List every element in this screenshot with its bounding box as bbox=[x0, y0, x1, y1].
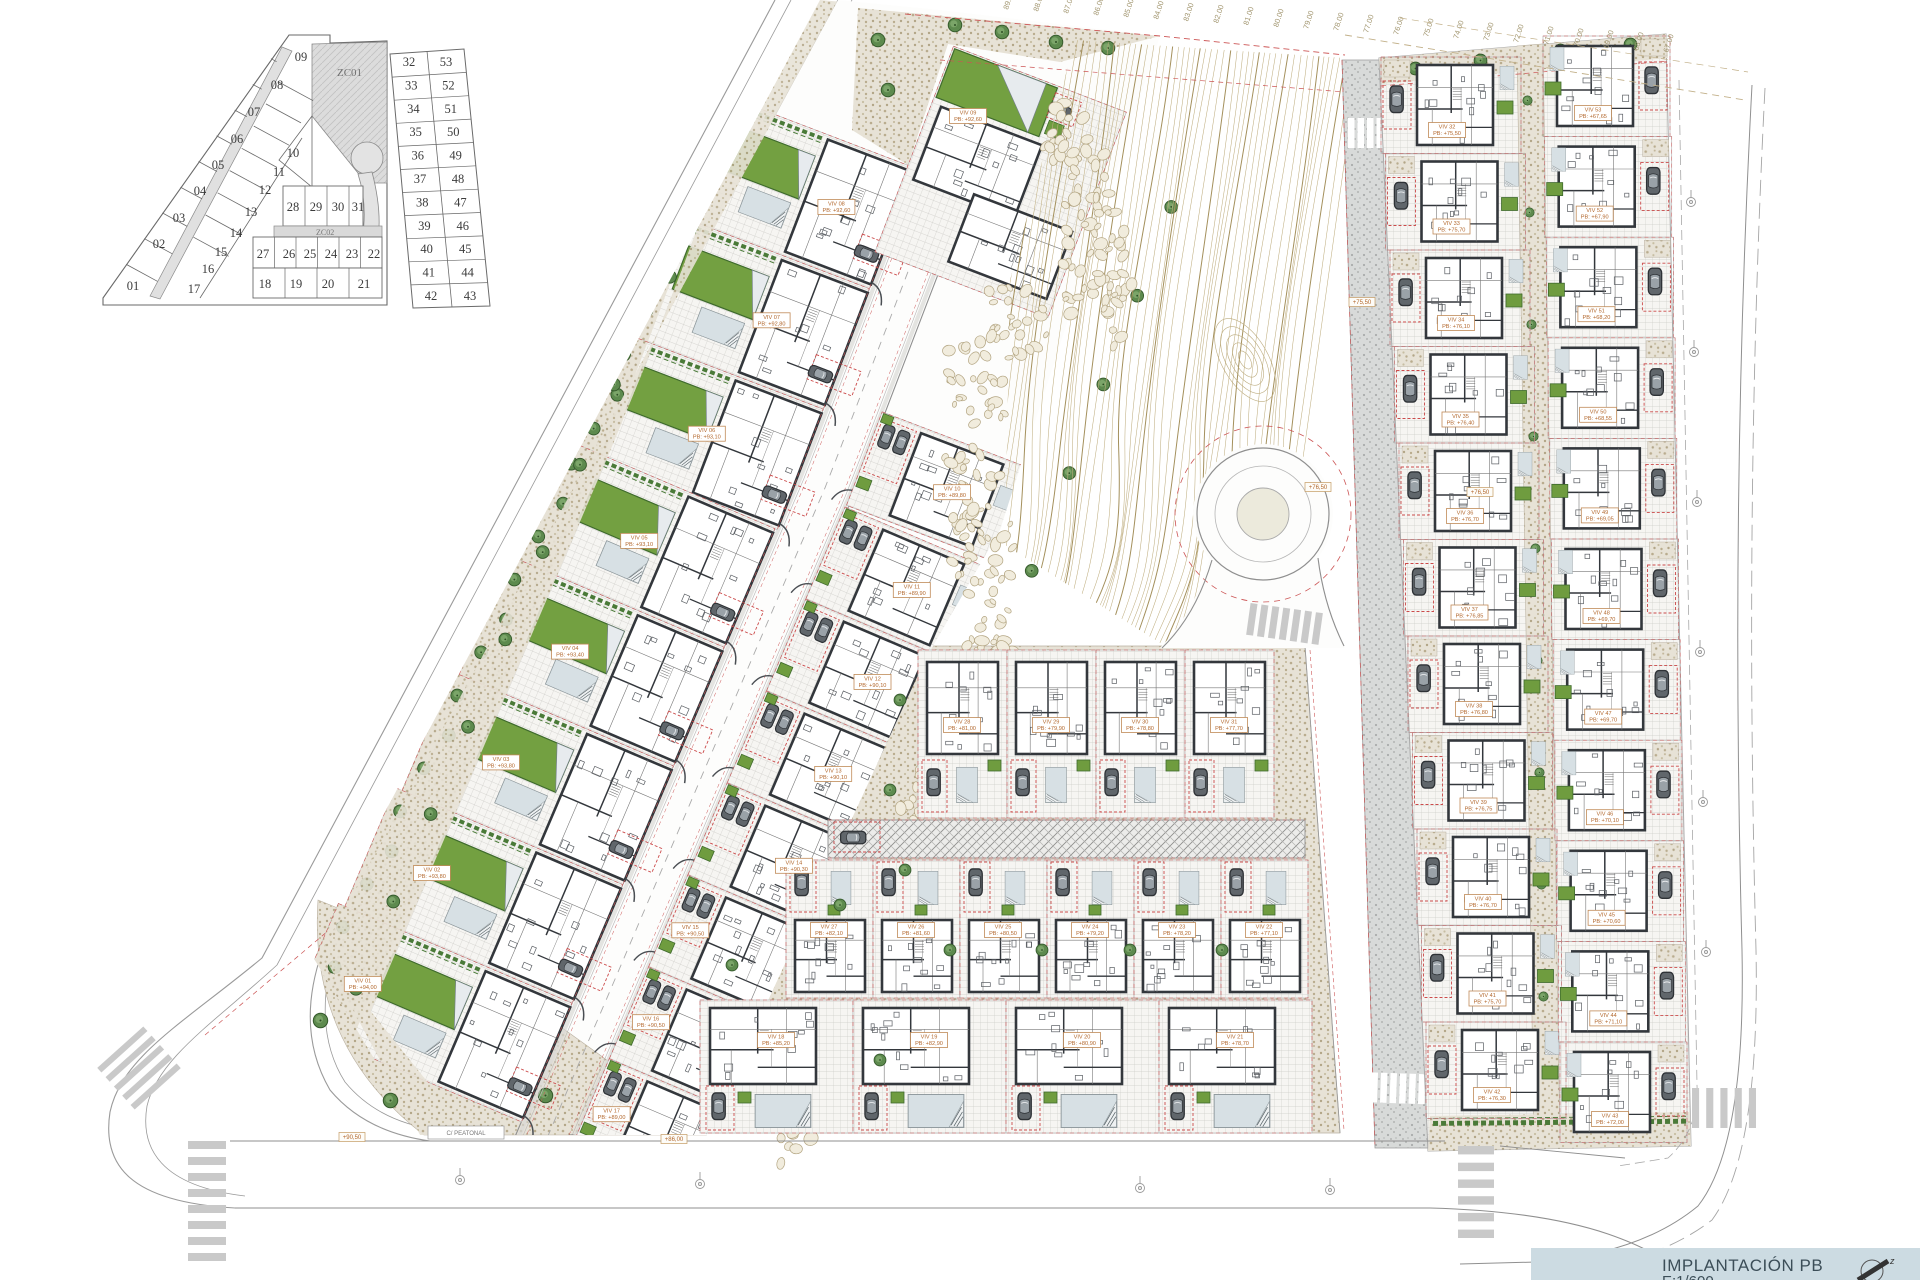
svg-text:14: 14 bbox=[230, 226, 243, 240]
svg-text:VIV 40: VIV 40 bbox=[1475, 897, 1492, 903]
svg-text:VIV 48: VIV 48 bbox=[1593, 611, 1610, 617]
svg-text:13: 13 bbox=[245, 205, 258, 219]
svg-text:15: 15 bbox=[215, 245, 228, 259]
svg-text:45: 45 bbox=[459, 242, 472, 256]
svg-text:01: 01 bbox=[127, 279, 140, 293]
svg-text:40: 40 bbox=[420, 242, 433, 256]
svg-text:VIV 03: VIV 03 bbox=[493, 757, 510, 763]
svg-text:03: 03 bbox=[173, 211, 186, 225]
svg-text:PB: +68,20: PB: +68,20 bbox=[1582, 315, 1610, 321]
svg-text:PB: +92,60: PB: +92,60 bbox=[822, 208, 850, 214]
svg-text:PB: +89,00: PB: +89,00 bbox=[598, 1115, 626, 1121]
svg-text:PB: +76,10: PB: +76,10 bbox=[1442, 324, 1470, 330]
svg-text:41: 41 bbox=[423, 266, 436, 280]
svg-text:11: 11 bbox=[273, 165, 285, 179]
svg-text:ZC01: ZC01 bbox=[337, 67, 362, 79]
svg-text:PB: +78,20: PB: +78,20 bbox=[1163, 931, 1191, 937]
svg-text:PB: +90,50: PB: +90,50 bbox=[637, 1023, 665, 1029]
svg-text:33: 33 bbox=[405, 78, 418, 92]
svg-text:VIV 51: VIV 51 bbox=[1588, 309, 1605, 315]
svg-text:PB: +89,80: PB: +89,80 bbox=[938, 493, 966, 499]
svg-text:29: 29 bbox=[310, 200, 323, 214]
svg-text:PB: +76,30: PB: +76,30 bbox=[1478, 1096, 1506, 1102]
svg-text:VIV 37: VIV 37 bbox=[1461, 607, 1478, 613]
svg-text:VIV 52: VIV 52 bbox=[1586, 208, 1603, 214]
svg-text:21: 21 bbox=[358, 277, 371, 291]
svg-text:VIV 24: VIV 24 bbox=[1082, 925, 1099, 931]
svg-text:+76,50: +76,50 bbox=[1471, 490, 1490, 496]
svg-text:PB: +69,70: PB: +69,70 bbox=[1588, 617, 1616, 623]
svg-text:PB: +69,05: PB: +69,05 bbox=[1586, 516, 1614, 522]
svg-text:VIV 34: VIV 34 bbox=[1448, 318, 1465, 324]
svg-text:VIV 28: VIV 28 bbox=[954, 720, 971, 726]
svg-text:PB: +79,90: PB: +79,90 bbox=[1037, 726, 1065, 732]
svg-text:07: 07 bbox=[248, 105, 261, 119]
svg-text:PB: +69,70: PB: +69,70 bbox=[1589, 718, 1617, 724]
svg-text:+76,50: +76,50 bbox=[1309, 485, 1328, 491]
svg-text:PB: +71,10: PB: +71,10 bbox=[1594, 1019, 1622, 1025]
svg-text:02: 02 bbox=[153, 237, 166, 251]
svg-text:+86,00: +86,00 bbox=[665, 1137, 684, 1143]
svg-text:22: 22 bbox=[368, 247, 381, 261]
svg-text:52: 52 bbox=[442, 78, 455, 92]
svg-text:PB: +77,70: PB: +77,70 bbox=[1215, 726, 1243, 732]
svg-text:C/ PEATONAL: C/ PEATONAL bbox=[446, 1131, 486, 1137]
svg-text:VIV 49: VIV 49 bbox=[1591, 510, 1608, 516]
svg-text:VIV 14: VIV 14 bbox=[786, 860, 803, 866]
svg-text:PB: +77,10: PB: +77,10 bbox=[1250, 931, 1278, 937]
svg-text:PB: +93,10: PB: +93,10 bbox=[625, 542, 653, 548]
svg-text:42: 42 bbox=[425, 289, 438, 303]
svg-text:PB: +93,10: PB: +93,10 bbox=[693, 435, 721, 441]
svg-text:VIV 02: VIV 02 bbox=[424, 868, 441, 874]
svg-text:PB: +93,80: PB: +93,80 bbox=[487, 763, 515, 769]
svg-text:VIV 13: VIV 13 bbox=[825, 768, 842, 774]
svg-text:VIV 43: VIV 43 bbox=[1602, 1114, 1619, 1120]
svg-text:ZC02: ZC02 bbox=[316, 228, 334, 237]
svg-text:50: 50 bbox=[447, 125, 460, 139]
svg-text:VIV 33: VIV 33 bbox=[1443, 221, 1460, 227]
svg-text:48: 48 bbox=[452, 172, 465, 186]
svg-text:12: 12 bbox=[259, 183, 272, 197]
svg-text:28: 28 bbox=[287, 200, 300, 214]
svg-text:53: 53 bbox=[440, 55, 453, 69]
svg-text:+75,50: +75,50 bbox=[1353, 300, 1372, 306]
svg-text:32: 32 bbox=[403, 55, 416, 69]
svg-text:VIV 50: VIV 50 bbox=[1590, 409, 1607, 415]
svg-text:05: 05 bbox=[212, 158, 225, 172]
svg-text:VIV 35: VIV 35 bbox=[1452, 414, 1469, 420]
svg-text:VIV 45: VIV 45 bbox=[1598, 912, 1615, 918]
svg-text:VIV 08: VIV 08 bbox=[828, 202, 845, 208]
svg-text:VIV 30: VIV 30 bbox=[1132, 720, 1149, 726]
svg-text:PB: +76,70: PB: +76,70 bbox=[1451, 517, 1479, 523]
svg-text:VIV 41: VIV 41 bbox=[1479, 993, 1496, 999]
svg-text:VIV 38: VIV 38 bbox=[1466, 704, 1483, 710]
svg-text:VIV 16: VIV 16 bbox=[643, 1017, 660, 1023]
svg-text:47: 47 bbox=[454, 195, 467, 209]
svg-text:VIV 18: VIV 18 bbox=[768, 1035, 785, 1041]
svg-text:VIV 04: VIV 04 bbox=[562, 646, 579, 652]
svg-text:PB: +75,70: PB: +75,70 bbox=[1438, 228, 1466, 234]
svg-text:34: 34 bbox=[407, 102, 420, 116]
svg-text:PB: +85,20: PB: +85,20 bbox=[762, 1041, 790, 1047]
svg-text:30: 30 bbox=[332, 200, 345, 214]
svg-text:VIV 05: VIV 05 bbox=[631, 535, 648, 541]
svg-text:VIV 01: VIV 01 bbox=[354, 978, 371, 984]
svg-text:PB: +79,20: PB: +79,20 bbox=[1076, 931, 1104, 937]
svg-text:VIV 46: VIV 46 bbox=[1597, 812, 1614, 818]
svg-text:PB: +76,85: PB: +76,85 bbox=[1456, 614, 1484, 620]
svg-text:VIV 22: VIV 22 bbox=[1256, 925, 1273, 931]
svg-text:VIV 36: VIV 36 bbox=[1457, 511, 1474, 517]
svg-text:VIV 42: VIV 42 bbox=[1484, 1090, 1501, 1096]
svg-text:44: 44 bbox=[461, 266, 474, 280]
svg-text:PB: +67,65: PB: +67,65 bbox=[1579, 114, 1607, 120]
svg-text:VIV 23: VIV 23 bbox=[1169, 925, 1186, 931]
svg-text:PB: +76,80: PB: +76,80 bbox=[1460, 710, 1488, 716]
svg-text:PB: +78,70: PB: +78,70 bbox=[1221, 1041, 1249, 1047]
svg-text:VIV 27: VIV 27 bbox=[821, 925, 838, 931]
svg-text:VIV 31: VIV 31 bbox=[1221, 720, 1238, 726]
svg-text:46: 46 bbox=[457, 219, 470, 233]
svg-text:PB: +93,80: PB: +93,80 bbox=[418, 874, 446, 880]
svg-text:PB: +76,40: PB: +76,40 bbox=[1447, 421, 1475, 427]
svg-text:VIV 32: VIV 32 bbox=[1439, 125, 1456, 131]
svg-text:PB: +80,50: PB: +80,50 bbox=[989, 931, 1017, 937]
svg-text:49: 49 bbox=[449, 149, 462, 163]
svg-text:VIV 10: VIV 10 bbox=[944, 487, 961, 493]
svg-text:+90,50: +90,50 bbox=[343, 1135, 362, 1141]
svg-text:PB: +89,90: PB: +89,90 bbox=[898, 591, 926, 597]
svg-text:37: 37 bbox=[414, 172, 427, 186]
svg-text:38: 38 bbox=[416, 195, 429, 209]
svg-text:VIV 44: VIV 44 bbox=[1600, 1013, 1617, 1019]
svg-text:VIV 07: VIV 07 bbox=[763, 315, 780, 321]
svg-text:25: 25 bbox=[304, 247, 317, 261]
svg-text:19: 19 bbox=[290, 277, 303, 291]
svg-text:PB: +68,55: PB: +68,55 bbox=[1584, 416, 1612, 422]
svg-text:PB: +82,10: PB: +82,10 bbox=[815, 931, 843, 937]
svg-text:VIV 15: VIV 15 bbox=[682, 925, 699, 931]
svg-text:26: 26 bbox=[283, 247, 296, 261]
svg-text:VIV 17: VIV 17 bbox=[603, 1109, 620, 1115]
svg-text:09: 09 bbox=[295, 50, 308, 64]
svg-text:PB: +76,75: PB: +76,75 bbox=[1465, 807, 1493, 813]
svg-text:PB: +72,00: PB: +72,00 bbox=[1596, 1120, 1624, 1126]
svg-text:PB: +81,00: PB: +81,00 bbox=[948, 726, 976, 732]
svg-text:VIV 39: VIV 39 bbox=[1470, 800, 1487, 806]
svg-text:06: 06 bbox=[231, 132, 244, 146]
svg-text:VIV 53: VIV 53 bbox=[1585, 108, 1602, 114]
svg-text:43: 43 bbox=[464, 289, 477, 303]
svg-text:10: 10 bbox=[287, 146, 300, 160]
svg-text:PB: +67,90: PB: +67,90 bbox=[1581, 215, 1609, 221]
svg-text:35: 35 bbox=[409, 125, 422, 139]
svg-text:16: 16 bbox=[202, 262, 215, 276]
svg-text:PB: +94,00: PB: +94,00 bbox=[349, 985, 377, 991]
svg-text:PB: +92,80: PB: +92,80 bbox=[758, 321, 786, 327]
svg-text:z: z bbox=[1889, 1256, 1895, 1266]
svg-text:VIV 26: VIV 26 bbox=[908, 925, 925, 931]
svg-text:VIV 09: VIV 09 bbox=[960, 111, 977, 117]
svg-text:E:1/600: E:1/600 bbox=[1662, 1273, 1714, 1280]
svg-text:18: 18 bbox=[259, 277, 272, 291]
svg-text:PB: +70,10: PB: +70,10 bbox=[1591, 818, 1619, 824]
svg-text:VIV 25: VIV 25 bbox=[995, 925, 1012, 931]
svg-text:VIV 47: VIV 47 bbox=[1595, 711, 1612, 717]
svg-text:31: 31 bbox=[352, 200, 365, 214]
svg-text:36: 36 bbox=[412, 149, 425, 163]
svg-text:PB: +90,10: PB: +90,10 bbox=[819, 775, 847, 781]
svg-text:27: 27 bbox=[257, 247, 270, 261]
svg-text:VIV 11: VIV 11 bbox=[904, 585, 920, 591]
svg-text:PB: +93,40: PB: +93,40 bbox=[556, 653, 584, 659]
svg-text:VIV 21: VIV 21 bbox=[1227, 1035, 1244, 1041]
svg-text:PB: +90,30: PB: +90,30 bbox=[780, 867, 808, 873]
svg-text:20: 20 bbox=[322, 277, 335, 291]
svg-text:PB: +75,70: PB: +75,70 bbox=[1474, 1000, 1502, 1006]
svg-text:VIV 12: VIV 12 bbox=[864, 676, 881, 682]
svg-text:23: 23 bbox=[346, 247, 359, 261]
svg-text:PB: +80,90: PB: +80,90 bbox=[1068, 1041, 1096, 1047]
svg-text:VIV 19: VIV 19 bbox=[921, 1035, 938, 1041]
svg-text:PB: +90,10: PB: +90,10 bbox=[859, 683, 887, 689]
svg-text:PB: +92,60: PB: +92,60 bbox=[954, 117, 982, 123]
svg-text:VIV 20: VIV 20 bbox=[1074, 1035, 1091, 1041]
svg-text:PB: +75,50: PB: +75,50 bbox=[1433, 131, 1461, 137]
svg-text:51: 51 bbox=[445, 102, 458, 116]
svg-text:VIV 06: VIV 06 bbox=[698, 428, 715, 434]
svg-text:24: 24 bbox=[325, 247, 338, 261]
svg-text:39: 39 bbox=[418, 219, 431, 233]
svg-text:PB: +76,70: PB: +76,70 bbox=[1469, 903, 1497, 909]
svg-text:PB: +81,60: PB: +81,60 bbox=[902, 931, 930, 937]
svg-text:PB: +70,60: PB: +70,60 bbox=[1593, 919, 1621, 925]
svg-text:VIV 29: VIV 29 bbox=[1043, 720, 1060, 726]
svg-text:PB: +90,50: PB: +90,50 bbox=[676, 931, 704, 937]
svg-text:17: 17 bbox=[188, 282, 201, 296]
svg-text:08: 08 bbox=[271, 78, 284, 92]
svg-text:04: 04 bbox=[194, 184, 207, 198]
svg-text:PB: +78,80: PB: +78,80 bbox=[1126, 726, 1154, 732]
svg-text:PB: +82,90: PB: +82,90 bbox=[915, 1041, 943, 1047]
